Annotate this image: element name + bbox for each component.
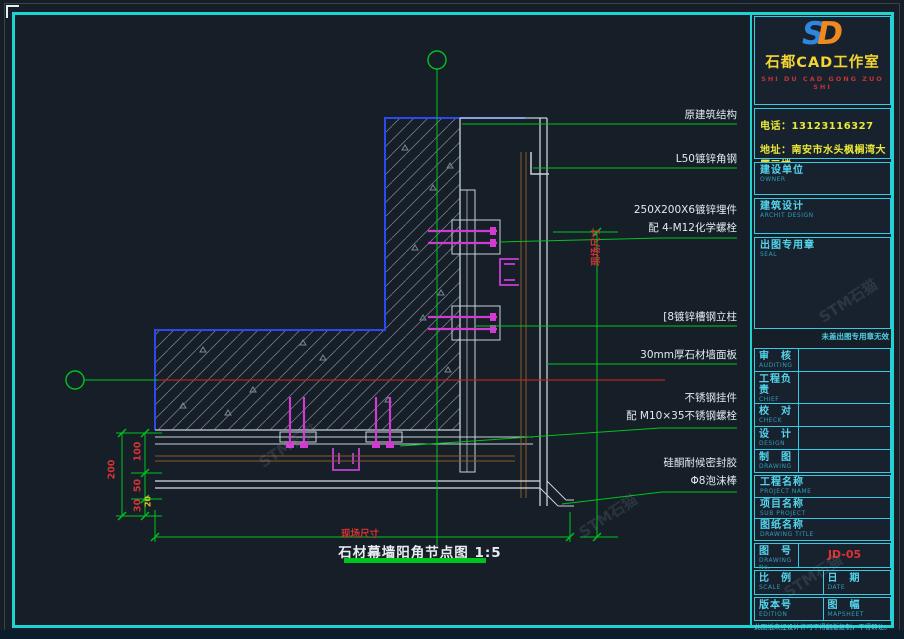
row-label: 图纸名称DRAWING TITLE — [755, 519, 814, 540]
table-row: 工程负责CHIEF — [755, 372, 890, 404]
row-label: 校 对CHECK — [755, 404, 799, 426]
owner-label-en: OWNER — [760, 176, 890, 183]
dim-30: 30 — [133, 490, 144, 522]
row-label: 工程负责CHIEF — [755, 372, 799, 403]
row-label-cn: 项目名称 — [760, 499, 806, 510]
row-label-cn: 图纸名称 — [760, 520, 814, 531]
architect-label-en: ARCHIT DESIGN — [760, 212, 890, 219]
architect-box: 建筑设计 ARCHIT DESIGN — [754, 198, 891, 234]
dim-site-vertical: 现场尺寸 — [588, 215, 602, 279]
row-label: 工程名称PROJECT NAME — [755, 476, 811, 497]
table-row: 项目名称SUB PROJECT — [755, 498, 890, 520]
owner-box: 建设单位 OWNER — [754, 162, 891, 195]
row-label-en: CHIEF — [759, 396, 798, 403]
annotation-angle-steel: L50镀锌角钢 — [577, 150, 737, 168]
row-label-en: DRAWING No. — [759, 557, 798, 571]
name-rows: 工程名称PROJECT NAME 项目名称SUB PROJECT 图纸名称DRA… — [754, 475, 891, 541]
annotation-text: [8镀锌槽钢立柱 — [663, 311, 737, 323]
edition-sheet-row: 版本号 EDITION 图 幅 MAPSHEET — [754, 597, 891, 621]
annotation-text: 不锈钢挂件 — [685, 392, 738, 404]
architect-label: 建筑设计 — [760, 201, 890, 212]
annotation-text: 配 M10×35不锈钢螺栓 — [626, 410, 737, 422]
studio-name: 石都CAD工作室 — [755, 51, 890, 72]
bottom-band — [0, 630, 904, 639]
row-value — [799, 427, 890, 449]
row-value — [799, 372, 890, 403]
cad-sheet: 原建筑结构 L50镀锌角钢 250X200X6镀锌埋件 配 4-M12化学螺栓 … — [0, 0, 904, 639]
drawing-title-underline — [344, 558, 486, 563]
row-label: 审 核AUDITING — [755, 349, 799, 371]
row-label: 图 号 DRAWING No. — [755, 544, 799, 567]
row-label-cn: 图 幅 — [828, 600, 891, 611]
row-value — [799, 349, 890, 371]
owner-label: 建设单位 — [760, 165, 890, 176]
logo-letter-d: D — [817, 16, 843, 52]
dim-20: 20 — [144, 488, 153, 516]
row-value — [799, 404, 890, 426]
row-label-cn: 图 号 — [759, 546, 798, 557]
studio-logo: SD — [755, 19, 890, 49]
row-label-en: EDITION — [759, 611, 823, 618]
row-label-en: PROJECT NAME — [760, 488, 811, 495]
table-row: 制 图DRAWING — [755, 450, 890, 472]
personnel-table: 审 核AUDITING 工程负责CHIEF 校 对CHECK 设 计DESIGN… — [754, 348, 891, 473]
table-row: 校 对CHECK — [755, 404, 890, 427]
row-label-cn: 设 计 — [759, 429, 798, 440]
seal-label: 出图专用章 — [760, 240, 890, 251]
annotation-text: 配 4-M12化学螺栓 — [648, 222, 737, 234]
row-label-cn: 审 核 — [759, 351, 798, 362]
logo-box: SD 石都CAD工作室 SHI DU CAD GONG ZUO SHI — [754, 16, 891, 105]
table-row: 图纸名称DRAWING TITLE — [755, 519, 890, 540]
row-label: 设 计DESIGN — [755, 427, 799, 449]
dim-100: 100 — [133, 432, 144, 472]
table-row: 审 核AUDITING — [755, 349, 890, 372]
copyright-note: 此图纸未经设计许可不得翻版复制，不得转让。 — [754, 621, 891, 631]
annotation-text: 原建筑结构 — [685, 109, 738, 121]
edition-cell: 版本号 EDITION — [755, 598, 823, 620]
corner-mark — [6, 5, 19, 18]
row-label-en: DATE — [828, 584, 891, 591]
contact-box: 电话：13123116327 地址：南安市水头枫榈湾大厦三楼 — [754, 108, 891, 159]
annotation-sealant: 硅酮耐候密封胶 Φ8泡沫棒 — [577, 454, 737, 490]
table-row: 设 计DESIGN — [755, 427, 890, 450]
annotation-channel-column: [8镀锌槽钢立柱 — [577, 308, 737, 326]
row-label-en: CHECK — [759, 417, 798, 424]
seal-label-en: SEAL — [760, 251, 890, 258]
sheet-cell: 图 幅 MAPSHEET — [823, 598, 891, 620]
row-label-en: MAPSHEET — [828, 611, 891, 618]
dim-site-horizontal: 现场尺寸 — [310, 526, 410, 540]
row-label: 项目名称SUB PROJECT — [755, 498, 806, 519]
annotation-text: L50镀锌角钢 — [676, 153, 737, 165]
row-label-cn: 工程负责 — [759, 374, 798, 396]
annotation-ss-hanger: 不锈钢挂件 配 M10×35不锈钢螺栓 — [577, 389, 737, 425]
annotation-text: 250X200X6镀锌埋件 — [634, 204, 737, 216]
row-label: 制 图DRAWING — [755, 450, 799, 472]
row-label-en: AUDITING — [759, 362, 798, 369]
row-label-en: DESIGN — [759, 440, 798, 447]
annotation-text: 硅酮耐候密封胶 — [664, 457, 738, 469]
phone-text: 电话：13123116327 — [760, 117, 890, 132]
annotation-text: Φ8泡沫棒 — [691, 475, 737, 487]
row-label-en: DRAWING TITLE — [760, 531, 814, 538]
row-label-cn: 校 对 — [759, 406, 798, 417]
annotation-existing-structure: 原建筑结构 — [577, 106, 737, 124]
dim-total: 200 — [107, 448, 118, 492]
seal-note: 未盖出图专用章无效 — [754, 331, 889, 342]
annotation-text: 30mm厚石材墙面板 — [640, 349, 737, 361]
row-label-cn: 工程名称 — [760, 477, 811, 488]
row-label-cn: 制 图 — [759, 452, 798, 463]
table-row: 工程名称PROJECT NAME — [755, 476, 890, 498]
titleblock-divider — [750, 12, 752, 628]
studio-pinyin: SHI DU CAD GONG ZUO SHI — [755, 75, 890, 91]
row-label-en: SUB PROJECT — [760, 510, 806, 517]
row-value — [799, 450, 890, 472]
row-label-en: DRAWING — [759, 463, 798, 470]
annotation-stone-panel: 30mm厚石材墙面板 — [577, 346, 737, 364]
row-label-cn: 日 期 — [828, 573, 891, 584]
